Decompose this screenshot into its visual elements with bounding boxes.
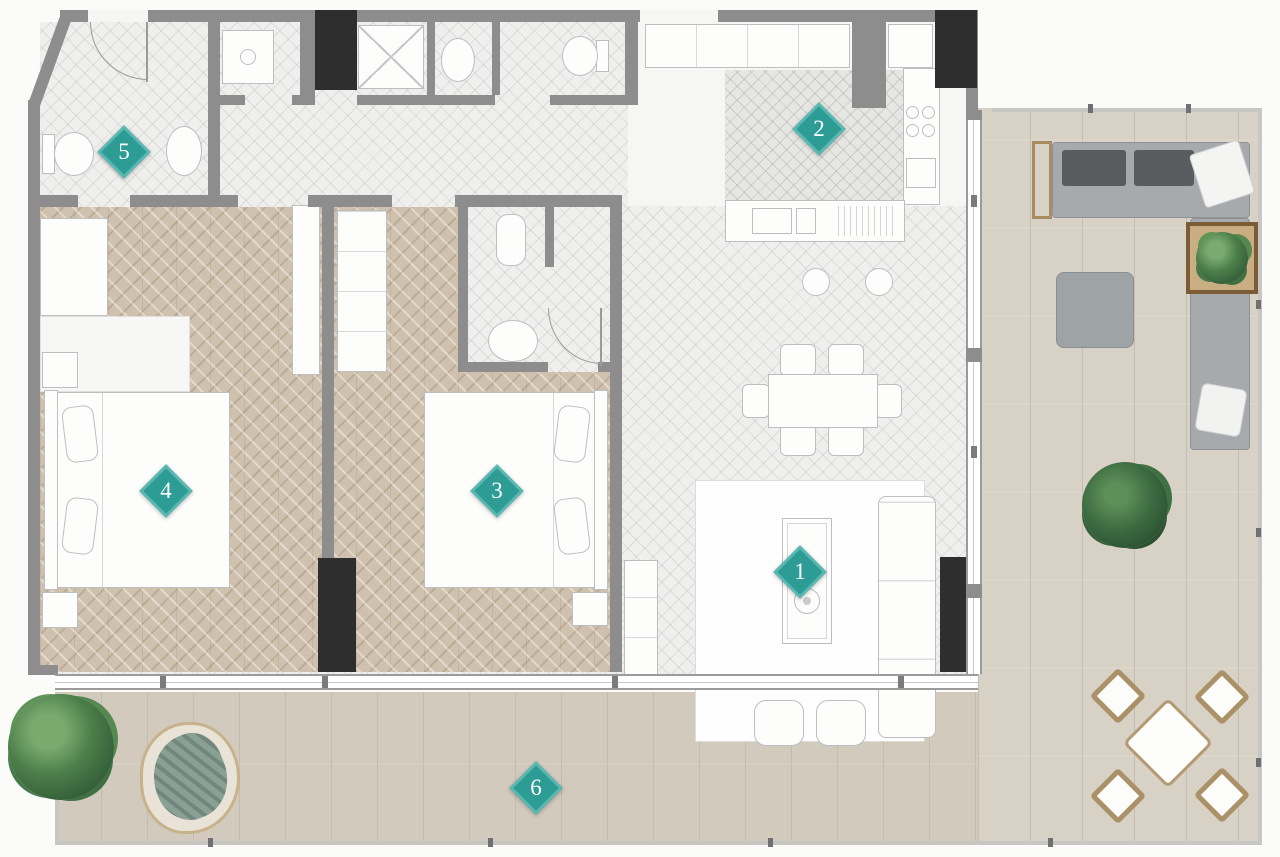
bar-stool xyxy=(865,268,893,296)
wall-bedroom3-right xyxy=(610,203,622,672)
shaft-column xyxy=(318,558,356,672)
large-plant-icon xyxy=(1082,462,1168,548)
marker-5-bathroom[interactable]: 5 xyxy=(97,125,151,179)
balustrade-post xyxy=(1088,104,1093,113)
window-mullion xyxy=(971,195,977,207)
wall-utility-seg xyxy=(292,95,315,105)
washbasin-wc xyxy=(441,38,475,82)
cooktop-burner-icon xyxy=(906,106,919,119)
balustrade-post xyxy=(1048,838,1053,847)
marker-3-label: 3 xyxy=(478,472,516,510)
nightstand xyxy=(42,352,78,388)
door-opening-hall xyxy=(640,10,718,22)
window-mullion-seg xyxy=(966,110,982,120)
wall-ensuite-left xyxy=(458,207,468,372)
bed-headboard xyxy=(594,390,608,590)
dining-chair xyxy=(780,424,816,456)
dining-table xyxy=(768,374,878,428)
pillow xyxy=(553,496,592,555)
marker-1-label: 1 xyxy=(781,553,819,591)
wall-partition xyxy=(625,22,638,105)
balustrade-bottom xyxy=(55,841,1262,845)
balustrade-post xyxy=(768,838,773,847)
balustrade-post xyxy=(1256,528,1261,537)
wall-top xyxy=(60,10,978,22)
dining-chair xyxy=(742,384,770,418)
wall-partition xyxy=(427,22,435,95)
kitchen-counter-top xyxy=(645,24,850,68)
wall-ensuite-partition xyxy=(545,203,554,267)
wall-bedroom-divider xyxy=(322,203,334,560)
nightstand xyxy=(42,592,78,628)
table-decor-dot-icon xyxy=(803,597,811,605)
marker-3-bedroom[interactable]: 3 xyxy=(470,464,524,518)
pillow xyxy=(553,404,592,463)
hanging-chair xyxy=(140,722,240,834)
marker-6-label: 6 xyxy=(517,769,555,807)
ottoman xyxy=(1056,272,1134,348)
kitchen-counter-corner xyxy=(888,24,933,68)
sofa xyxy=(878,496,936,738)
balustrade-post xyxy=(1256,300,1261,309)
potted-plant-icon xyxy=(1196,232,1248,284)
shower-drain-icon xyxy=(240,49,256,65)
sink-basin-left xyxy=(752,208,792,234)
sofa-side-frame xyxy=(1032,141,1052,219)
toilet-ensuite xyxy=(496,214,526,266)
wardrobe xyxy=(292,205,320,375)
dish-rack-icon xyxy=(838,206,898,236)
bed-headboard xyxy=(44,390,58,590)
sofa-cushion xyxy=(1062,150,1126,186)
window-mullion xyxy=(160,676,166,688)
cooktop-burner-icon xyxy=(922,106,935,119)
window-mullion xyxy=(322,676,328,688)
balustrade-post xyxy=(488,838,493,847)
marker-2-label: 2 xyxy=(800,110,838,148)
kitchen-tall-unit xyxy=(852,22,886,108)
oven-icon xyxy=(906,158,936,188)
wall-hall-seg xyxy=(308,195,392,207)
cooktop-burner-icon xyxy=(922,124,935,137)
large-plant-icon xyxy=(8,694,114,800)
balustrade-top xyxy=(992,108,1262,112)
balustrade-post xyxy=(1256,758,1261,767)
dining-chair xyxy=(828,424,864,456)
pillow xyxy=(61,404,100,463)
wall-hall-seg xyxy=(28,195,78,207)
marker-4-bedroom[interactable]: 4 xyxy=(139,464,193,518)
bar-stool xyxy=(802,268,830,296)
sofa-pillow xyxy=(1194,382,1248,437)
door-leaf-entry xyxy=(146,22,148,82)
washing-machine xyxy=(358,25,424,89)
hanging-chair-cushion xyxy=(140,724,240,830)
balustrade-post xyxy=(1186,104,1191,113)
toilet-bowl-wc xyxy=(562,36,598,76)
balustrade-right xyxy=(1258,108,1262,845)
dining-chair xyxy=(780,344,816,376)
wall-bath5-right xyxy=(208,22,220,195)
wall-utility-seg xyxy=(215,95,245,105)
marker-1-living-room[interactable]: 1 xyxy=(773,545,827,599)
wardrobe xyxy=(337,210,387,372)
wall-partition xyxy=(300,22,315,95)
wall-partition xyxy=(492,22,500,95)
nightstand xyxy=(572,592,608,626)
cabinet-living xyxy=(624,560,658,678)
window-mullion xyxy=(898,676,904,688)
wall-stub-bottom-left xyxy=(28,665,58,675)
washbasin-ensuite xyxy=(488,320,538,362)
window-mullion xyxy=(612,676,618,688)
dining-chair xyxy=(828,344,864,376)
marker-5-label: 5 xyxy=(105,133,143,171)
window-mullion xyxy=(971,446,977,458)
pillow xyxy=(61,496,100,555)
wall-ensuite-bottom xyxy=(458,362,548,372)
toilet-bowl-bath5 xyxy=(54,132,94,176)
shaft-column xyxy=(315,10,357,90)
pouf xyxy=(754,700,804,746)
floor-plan-canvas: 1 2 3 4 5 6 xyxy=(0,0,1280,857)
pouf xyxy=(816,700,866,746)
shaft-column xyxy=(935,10,977,88)
door-opening-entry xyxy=(88,10,148,22)
wall-hall-seg xyxy=(455,195,622,207)
window-mullion-seg xyxy=(966,584,982,598)
window-wall-bottom xyxy=(55,674,978,690)
dining-chair xyxy=(874,384,902,418)
sink-basin-right xyxy=(796,208,816,234)
closet-counter xyxy=(40,218,108,316)
balustrade-post xyxy=(208,838,213,847)
marker-4-label: 4 xyxy=(147,472,185,510)
sofa-cushion xyxy=(1134,150,1194,186)
cooktop-burner-icon xyxy=(906,124,919,137)
window-mullion-seg xyxy=(966,348,982,362)
door-leaf-ensuite xyxy=(600,308,602,366)
marker-2-kitchen[interactable]: 2 xyxy=(792,102,846,156)
marker-6-terrace[interactable]: 6 xyxy=(509,761,563,815)
wall-utility-seg xyxy=(357,95,495,105)
wall-hall-seg xyxy=(130,195,238,207)
wall-left xyxy=(28,100,40,675)
washbasin-bath5 xyxy=(166,126,202,176)
